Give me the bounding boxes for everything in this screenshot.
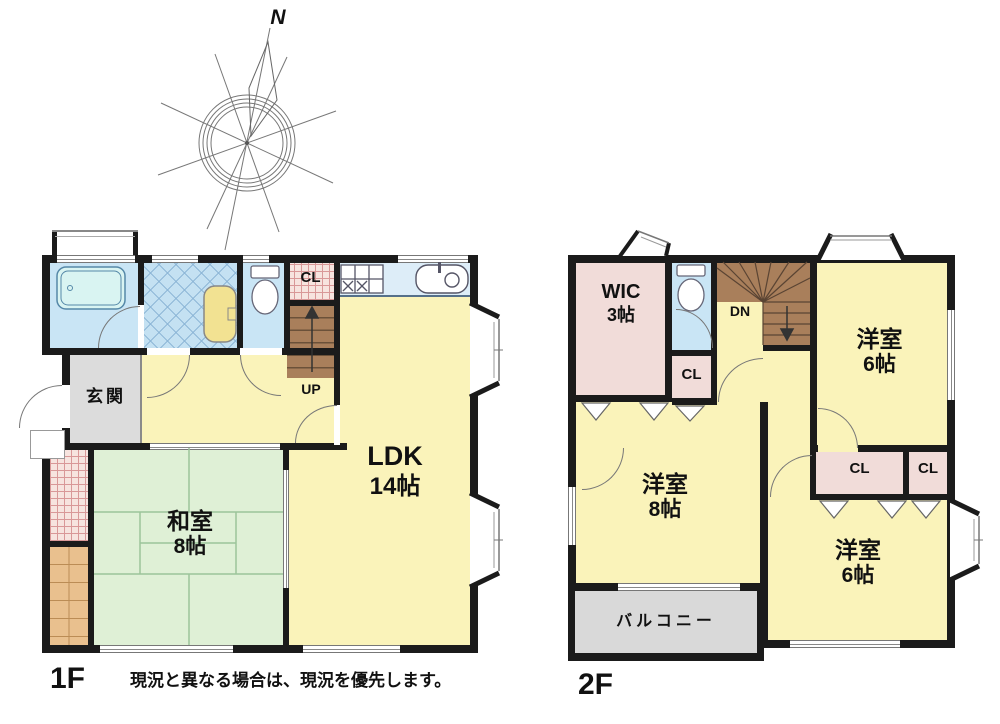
- wall-segment: [760, 402, 768, 648]
- entrance-step-line: [140, 352, 142, 443]
- bath-window-bump-face: [52, 230, 138, 232]
- bath-window-bump-face: [55, 236, 135, 237]
- washroom-1f: [144, 262, 237, 352]
- window: [790, 640, 900, 648]
- wall-segment: [568, 255, 955, 263]
- kitchen-counter-1f: [340, 262, 470, 297]
- oshiire-closet-1f: [50, 448, 88, 541]
- wall-segment: [810, 445, 818, 452]
- wall-segment: [470, 255, 478, 653]
- room-size: 8帖: [595, 498, 735, 523]
- wall-segment: [50, 541, 94, 547]
- door-opening: [240, 348, 282, 355]
- room-name: LDK: [325, 441, 465, 473]
- wall-segment: [575, 395, 672, 402]
- wall-segment: [42, 348, 340, 355]
- room-name: 洋室: [788, 537, 928, 564]
- closet-label: CL: [287, 269, 334, 287]
- compass-icon: [158, 28, 336, 250]
- wic-label: WIC 3帖: [578, 281, 664, 326]
- wall-segment: [858, 445, 955, 452]
- bath-window-bump-side: [133, 230, 138, 256]
- angled-window-icon: [620, 231, 669, 256]
- closet-a-label: CL: [816, 460, 903, 478]
- stairs-down-label: DN: [720, 303, 760, 320]
- balcony-label: バルコニー: [586, 613, 746, 632]
- door-opening: [62, 385, 70, 428]
- wall-segment: [287, 300, 334, 306]
- room-size: 14帖: [325, 473, 465, 501]
- entrance-porch-step: [30, 430, 65, 459]
- wall-segment: [672, 398, 717, 405]
- room-name: 洋室: [812, 326, 947, 353]
- wall-segment: [237, 262, 243, 352]
- room-name: 和室: [120, 508, 260, 535]
- disclaimer-note: 現況と異なる場合は、現況を優先します。: [130, 671, 451, 691]
- wall-segment: [42, 255, 50, 355]
- window: [568, 487, 576, 545]
- wall-segment: [711, 262, 717, 402]
- sliding-door: [150, 443, 280, 450]
- floor2-title: 2F: [578, 667, 613, 702]
- door-opening: [147, 348, 190, 355]
- wall-segment: [672, 350, 717, 356]
- wall-segment: [665, 262, 672, 402]
- room-size: 6帖: [812, 353, 947, 378]
- bath-window-bump-side: [52, 230, 57, 256]
- entrance-label: 玄関: [74, 387, 138, 407]
- window: [947, 310, 955, 400]
- stairs-2f-lower: [763, 302, 810, 345]
- window: [100, 645, 233, 653]
- window: [398, 255, 468, 263]
- japanese-room-label: 和室 8帖: [120, 508, 260, 560]
- stairs-up-label: UP: [288, 381, 334, 398]
- room-size: 6帖: [788, 564, 928, 589]
- wall-segment: [763, 345, 817, 351]
- wall-segment: [42, 443, 50, 653]
- room-name: 洋室: [595, 471, 735, 498]
- window: [152, 255, 198, 263]
- bedroom-west-label: 洋室 8帖: [595, 471, 735, 523]
- room-size: 8帖: [120, 535, 260, 560]
- wall-segment: [568, 591, 575, 661]
- wall-segment: [568, 653, 764, 661]
- stairs-1f: [287, 306, 334, 378]
- wall-segment: [815, 494, 955, 500]
- compass-north-label: N: [258, 6, 298, 31]
- room-size: 3帖: [578, 305, 664, 326]
- bedroom-north-label: 洋室 6帖: [812, 326, 947, 378]
- floorplan-page: N 玄関 CL UP 和室 8帖 LDK 14帖 WIC 3帖 CL DN 洋室…: [0, 0, 1000, 724]
- window: [243, 255, 269, 263]
- stairs-2f: [717, 262, 810, 302]
- floor1-title: 1F: [50, 661, 85, 696]
- closet-b-label: CL: [909, 460, 947, 478]
- bedroom-south-label: 洋室 6帖: [788, 537, 928, 589]
- sliding-door: [283, 470, 289, 588]
- wood-floor-1f: [50, 547, 88, 645]
- hall-closet-label: CL: [672, 366, 711, 384]
- window: [57, 255, 135, 263]
- window: [303, 645, 400, 653]
- sliding-window: [618, 583, 740, 591]
- ldk-label: LDK 14帖: [325, 441, 465, 501]
- toilet-room-1f: [243, 262, 284, 352]
- door-arc: [19, 385, 62, 428]
- wall-segment: [334, 262, 340, 405]
- room-name: WIC: [578, 281, 664, 305]
